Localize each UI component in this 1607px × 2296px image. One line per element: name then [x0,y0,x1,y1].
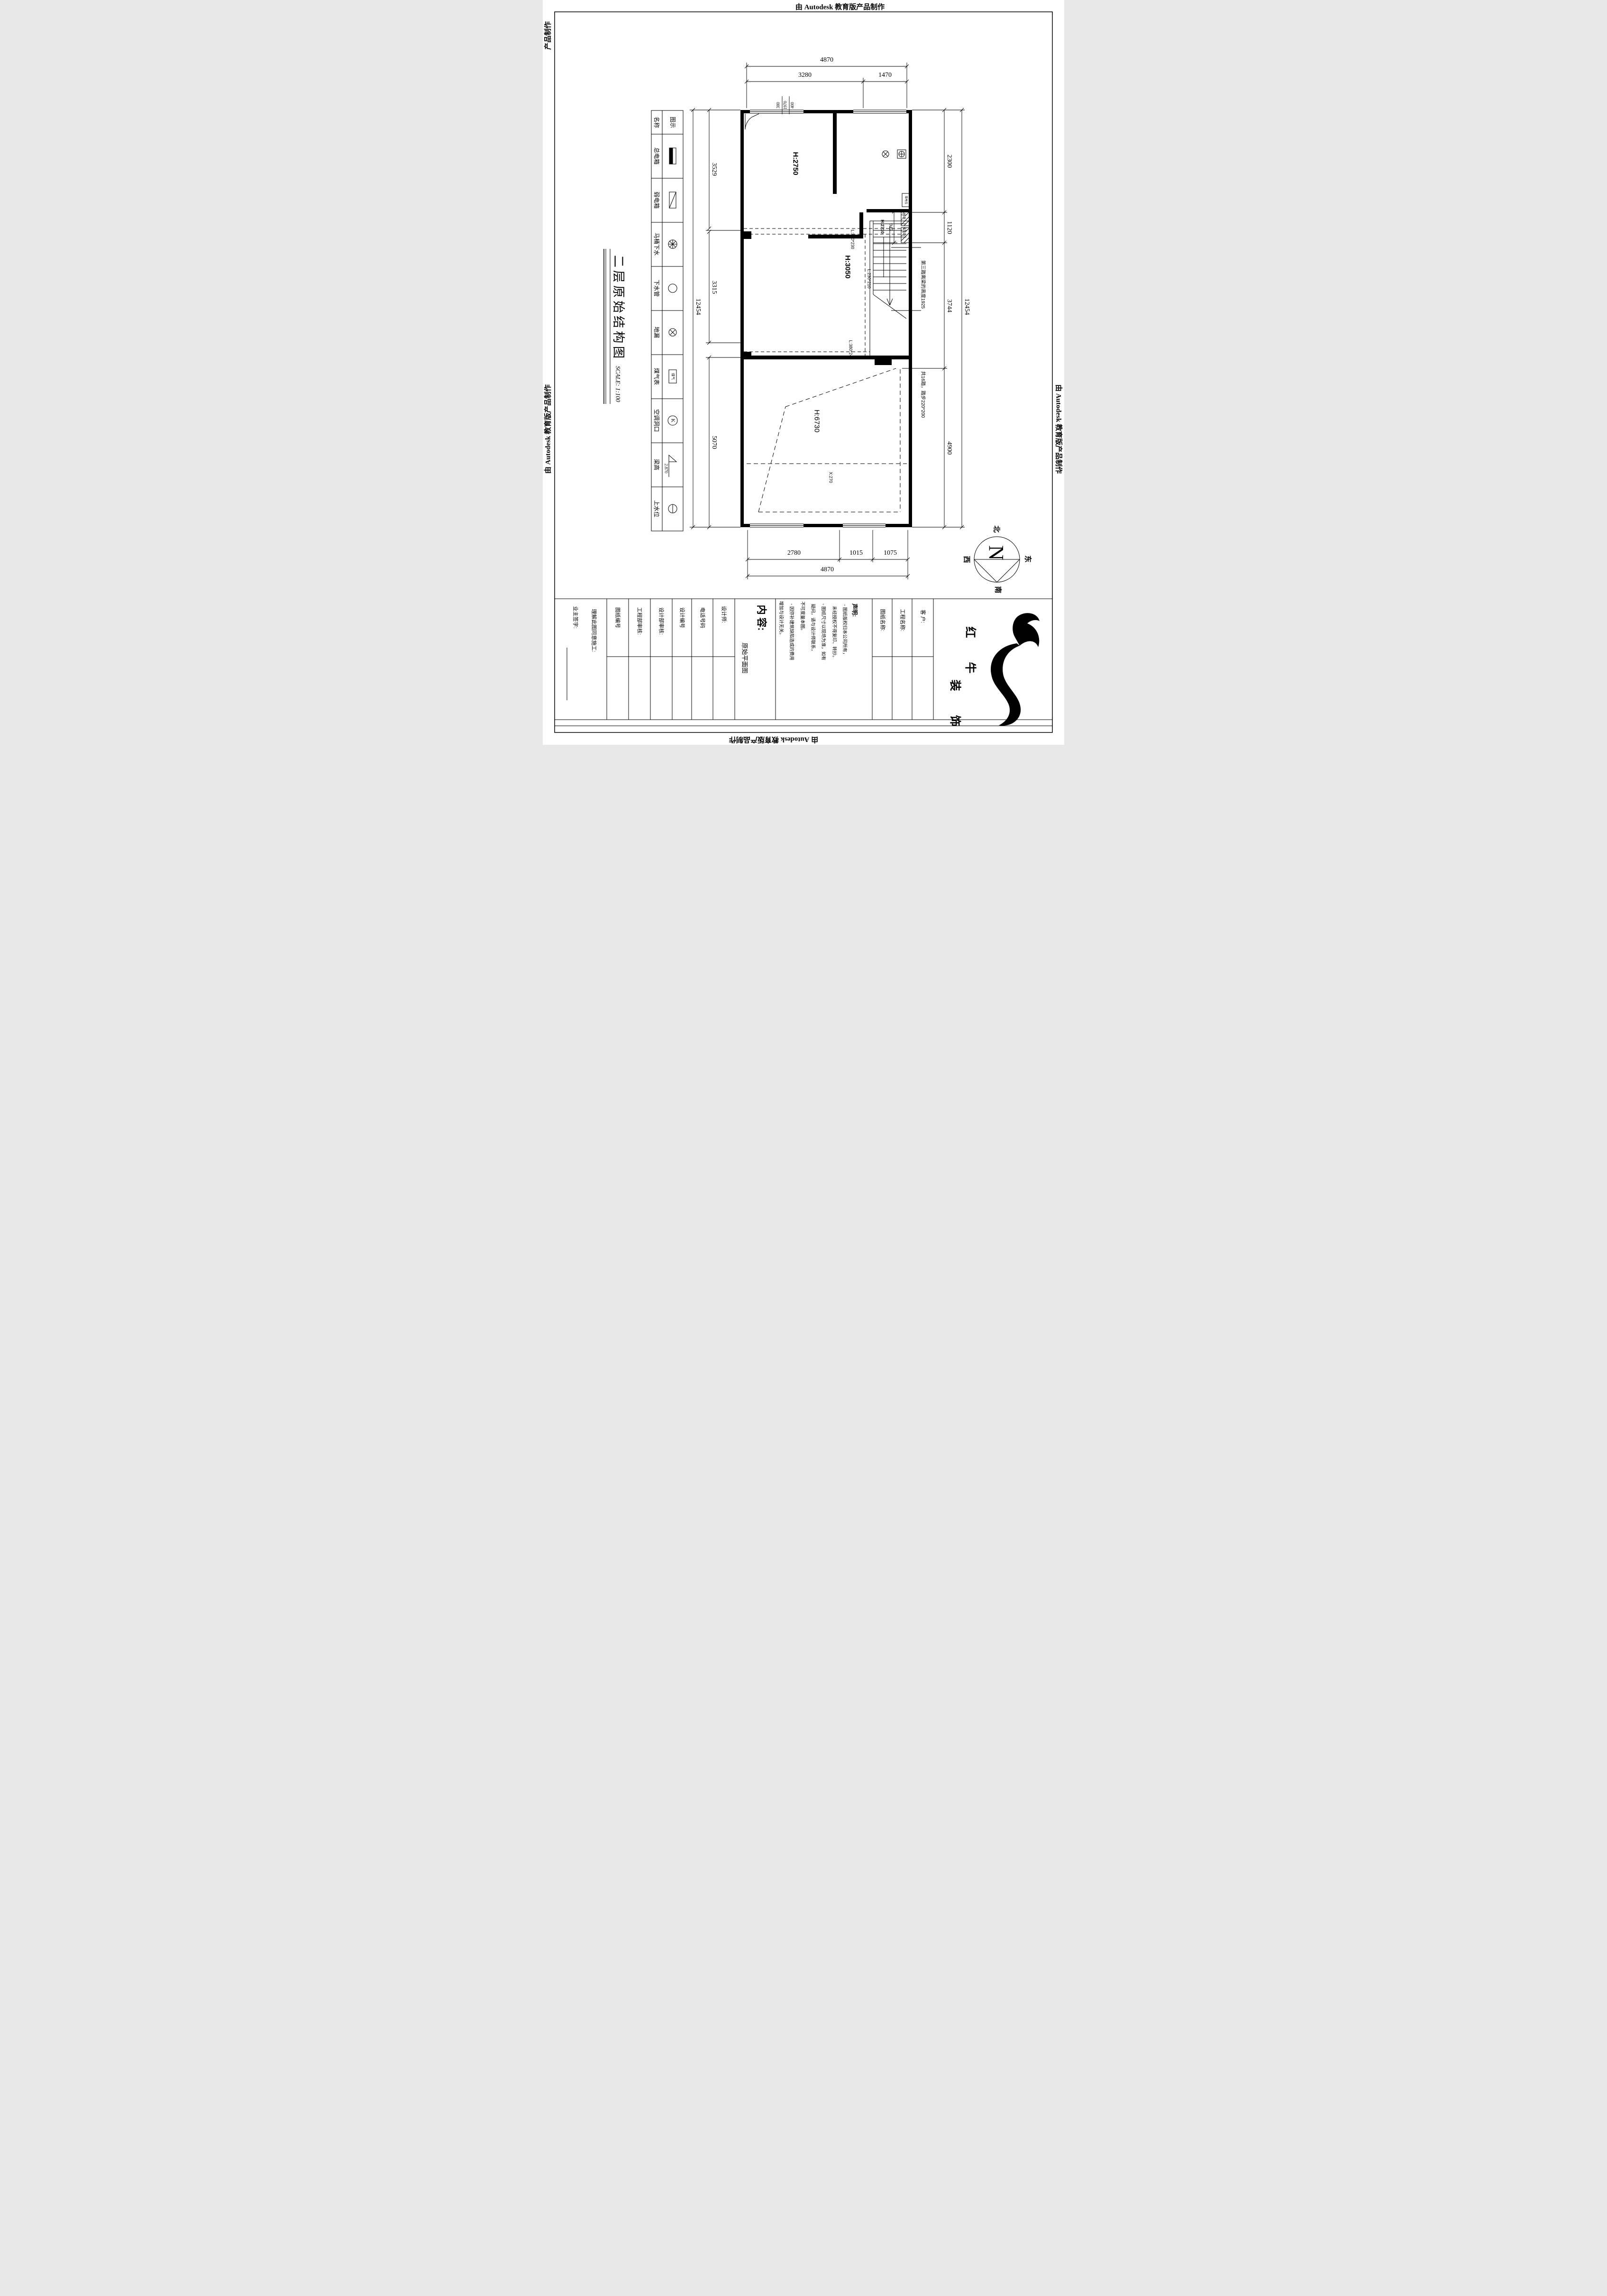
design-number-label: 设计编号 [679,607,685,628]
legend-row-label: 梁高 [654,459,659,470]
dim-left-seg: 3315 [711,281,717,294]
beam-label: L:230*210 [867,269,871,288]
legend-row-label: 地漏 [654,327,659,338]
dim-right-overall: 12454 [963,299,970,315]
stamp-bottom: 由 Autodesk 教育版产品制作 [729,736,818,743]
stamp-right: 由 Autodesk 教育版产品制作 [1055,384,1062,474]
legend-row-label: 煤气表 [654,368,659,385]
gas-meter-label: 煤气 [671,373,675,380]
declaration-title: 声明: [852,604,858,617]
bull-logo [991,613,1040,725]
page-title: 二层原始结构图 [612,255,625,361]
beam-label: L:200*230 [850,229,855,249]
windows [750,110,906,528]
door-swing [745,114,759,129]
dim-bottom-overall: 4870 [821,567,834,573]
dim-right-seg: 3744 [946,299,952,312]
dim-top-seg: 3280 [798,72,812,79]
compass-north-label: 北 [993,525,1000,532]
stamp-top: 由 Autodesk 教育版产品制作 [795,4,885,11]
staircase [870,221,909,356]
declaration-line: 增加与设计无关。 [778,601,783,637]
toilet-drain-icon [668,240,677,248]
declaration-line: 不可度量本图。 [800,602,804,633]
content-value: 原始平面图 [742,642,748,673]
declaration-line: 疑问，请与设计师联系， [810,604,815,654]
project-name-label: 工程名称: [900,609,905,631]
declaration-line: ◦ 因弥补建筑缺陷造成的费用 [789,604,794,660]
dim-bottom-seg: 1015 [849,550,863,557]
dim-top-overall: 4870 [820,57,833,64]
dim-bottom-seg: 1075 [884,550,897,557]
stair-note: 第三踏离梁的高度1925 [920,260,925,309]
dim-left-seg: 5070 [711,436,717,449]
room-height-label: H:3050 [844,255,851,278]
dim-left-seg: 3529 [711,163,717,176]
dim-right-seg: 4900 [946,441,952,455]
dim-bottom-seg: 2780 [787,550,801,557]
dim-small: 400 [791,102,795,109]
dimension-lines [690,63,965,579]
room-height-label: H:6730 [813,410,821,432]
low-voltage-box-icon [669,192,676,208]
beam-label: L:380*240 [849,340,853,359]
compass-n-letter: N [986,545,1006,560]
legend-row-label: 上水位 [654,500,659,517]
owner-signature-label: 业主签字: [573,606,578,628]
legend-header-name: 名称 [654,117,659,128]
legend-row-label: 马桶下水 [654,233,659,256]
legend-row-label: 总电箱 [654,147,659,165]
floor-drain-symbol [882,151,889,157]
main-power-box-icon [669,148,676,164]
ac-opening-label: K [670,419,676,422]
legend-symbols [668,148,677,513]
legend-row-label: 空调洞口 [654,409,659,432]
drawing-number-label: 图纸编号 [615,607,620,628]
phone-number-label: 电话号码 [700,607,705,628]
scale-label: SCALE: 1:100 [615,366,621,402]
legend-row-label: 弱电箱 [654,192,659,209]
compass-south-label: 南 [995,586,1002,593]
beam-height-icon [669,455,676,477]
legend-header-symbol: 图示 [670,117,676,128]
drawing-name-label: 图纸名称: [880,609,885,631]
compass-west-label: 西 [963,556,970,563]
dim-top-seg: 1470 [878,72,892,79]
brand-name-line2: 装 饰 [949,680,960,737]
headroom-label: H:2710 [880,220,885,234]
legend-row-label: 下水管 [654,280,659,297]
drawing-sheet: 由 Autodesk 教育版产品制作 由 Autodesk 教育版产品制作 产品… [543,0,1064,745]
dashed-beams [744,229,909,356]
water-supply-symbol [897,150,906,158]
agree-construction-label: 理解此图同意施工: [591,609,596,652]
design-audit-label: 设计部审核: [658,607,664,635]
client-label: 客 户: [920,610,925,623]
dim-right-seg: 2300 [946,155,952,168]
dim-small: 1970 [784,101,788,110]
equipotential-label: 等电位 [904,196,907,204]
content-label: 内 容: [757,605,767,631]
engineering-audit-label: 工程部审核: [637,607,642,635]
declaration-line: ◦ 图纸尺寸以现场为准，如有 [821,604,825,660]
designer-label: 设计师: [721,606,726,623]
declaration-line: ◦ 图纸版权归本公司所有， [842,604,847,657]
floor-plan-walls [740,110,912,527]
beam-height-value: 2.870 [664,464,668,473]
dim-small: 380 [776,102,781,109]
drain-pipe-icon [668,284,677,293]
weak-power-label: 弱电 [902,213,905,220]
water-supply-icon [668,504,677,513]
stamp-left-fragment: 产品制作 [545,21,552,50]
dim-left-overall: 12454 [694,299,701,315]
strong-power-label: 强电 [902,229,905,236]
floor-drain-icon [669,329,676,336]
dim-right-seg: 1120 [946,221,952,234]
stair-note: 共16踏，踏步220*200 [920,371,925,418]
ridge-label: X:270 [829,472,833,483]
column-block [744,231,751,239]
stair-direction-arrow [887,226,893,305]
title-rules [604,249,610,404]
room-height-label: H:2750 [792,152,799,175]
sloped-ceiling-outline [747,368,907,512]
compass-east-label: 东 [1024,555,1032,562]
stamp-left: 由 Autodesk 教育版产品制作 [545,384,552,474]
dim-stair-width: 945 [888,224,893,231]
brand-name-line1: 红 牛 [964,627,976,684]
declaration-line: 未经授权不得复印、转抄。 [831,606,836,660]
column-block [744,352,751,359]
